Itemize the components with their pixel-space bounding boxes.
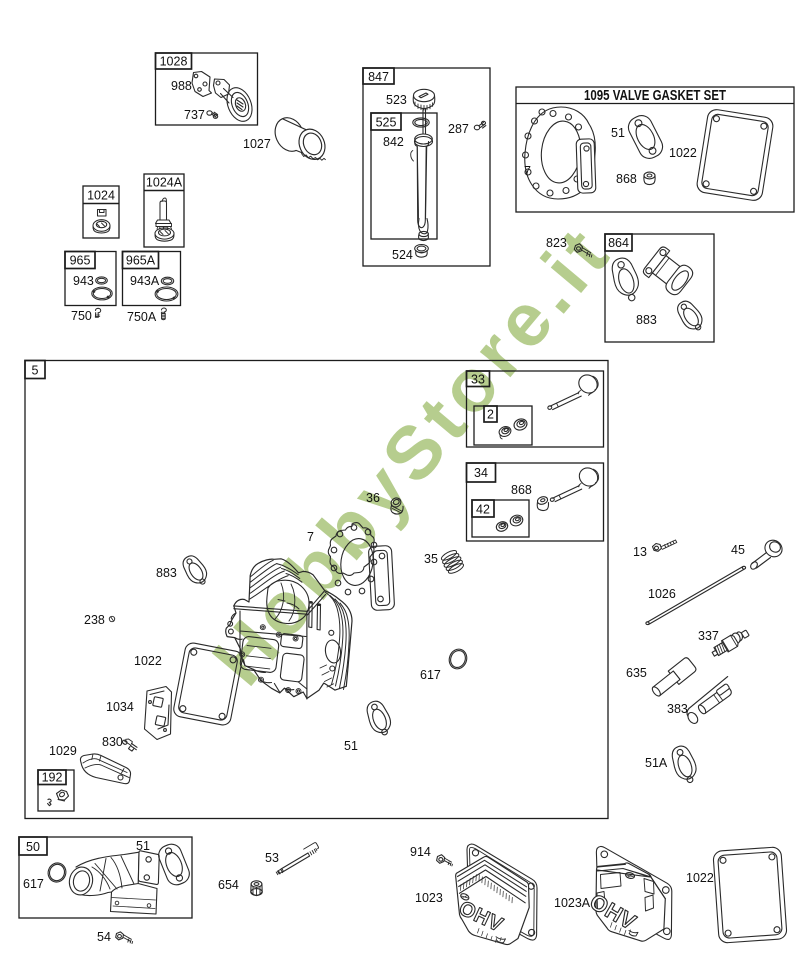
svg-text:617: 617 (23, 877, 44, 891)
svg-text:1023A: 1023A (554, 896, 591, 910)
svg-text:2: 2 (487, 408, 494, 422)
svg-text:42: 42 (476, 503, 490, 517)
svg-text:5: 5 (32, 364, 39, 378)
svg-text:45: 45 (731, 543, 745, 557)
svg-text:1022: 1022 (134, 654, 162, 668)
svg-text:830: 830 (102, 735, 123, 749)
svg-text:1022: 1022 (686, 871, 714, 885)
svg-text:525: 525 (376, 116, 397, 130)
svg-text:842: 842 (383, 135, 404, 149)
svg-text:1027: 1027 (243, 137, 271, 151)
svg-text:750A: 750A (127, 310, 157, 324)
svg-text:524: 524 (392, 248, 413, 262)
svg-text:383: 383 (667, 702, 688, 716)
svg-text:7: 7 (307, 530, 314, 544)
svg-text:1022: 1022 (669, 146, 697, 160)
svg-text:965A: 965A (126, 254, 156, 268)
svg-text:34: 34 (474, 466, 488, 480)
svg-text:1026: 1026 (648, 587, 676, 601)
svg-text:965: 965 (70, 254, 91, 268)
svg-text:864: 864 (608, 236, 629, 250)
svg-text:1029: 1029 (49, 744, 77, 758)
svg-text:914: 914 (410, 845, 431, 859)
svg-text:823: 823 (546, 236, 567, 250)
svg-text:13: 13 (633, 545, 647, 559)
svg-text:847: 847 (368, 70, 389, 84)
svg-text:1024A: 1024A (146, 176, 183, 190)
svg-text:50: 50 (26, 840, 40, 854)
svg-text:943A: 943A (130, 274, 160, 288)
svg-text:883: 883 (636, 313, 657, 327)
svg-text:51: 51 (136, 839, 150, 853)
svg-text:192: 192 (42, 771, 63, 785)
svg-text:33: 33 (471, 373, 485, 387)
svg-text:868: 868 (511, 483, 532, 497)
svg-text:51A: 51A (645, 756, 668, 770)
svg-text:737: 737 (184, 108, 205, 122)
svg-text:7: 7 (524, 164, 531, 178)
svg-text:523: 523 (386, 93, 407, 107)
svg-text:1028: 1028 (160, 55, 188, 69)
svg-text:238: 238 (84, 613, 105, 627)
svg-text:337: 337 (698, 629, 719, 643)
svg-text:51: 51 (611, 126, 625, 140)
svg-text:36: 36 (366, 491, 380, 505)
svg-text:617: 617 (420, 668, 441, 682)
svg-text:54: 54 (97, 930, 111, 944)
svg-text:943: 943 (73, 274, 94, 288)
svg-text:1034: 1034 (106, 700, 134, 714)
svg-text:287: 287 (448, 122, 469, 136)
svg-text:750: 750 (71, 309, 92, 323)
svg-text:1095 VALVE GASKET SET: 1095 VALVE GASKET SET (584, 88, 726, 104)
svg-text:53: 53 (265, 851, 279, 865)
svg-text:988: 988 (171, 79, 192, 93)
svg-text:1024: 1024 (87, 189, 115, 203)
svg-text:654: 654 (218, 878, 239, 892)
svg-text:883: 883 (156, 566, 177, 580)
svg-text:51: 51 (344, 739, 358, 753)
svg-text:868: 868 (616, 172, 637, 186)
svg-text:35: 35 (424, 552, 438, 566)
svg-text:1023: 1023 (415, 891, 443, 905)
svg-text:635: 635 (626, 666, 647, 680)
